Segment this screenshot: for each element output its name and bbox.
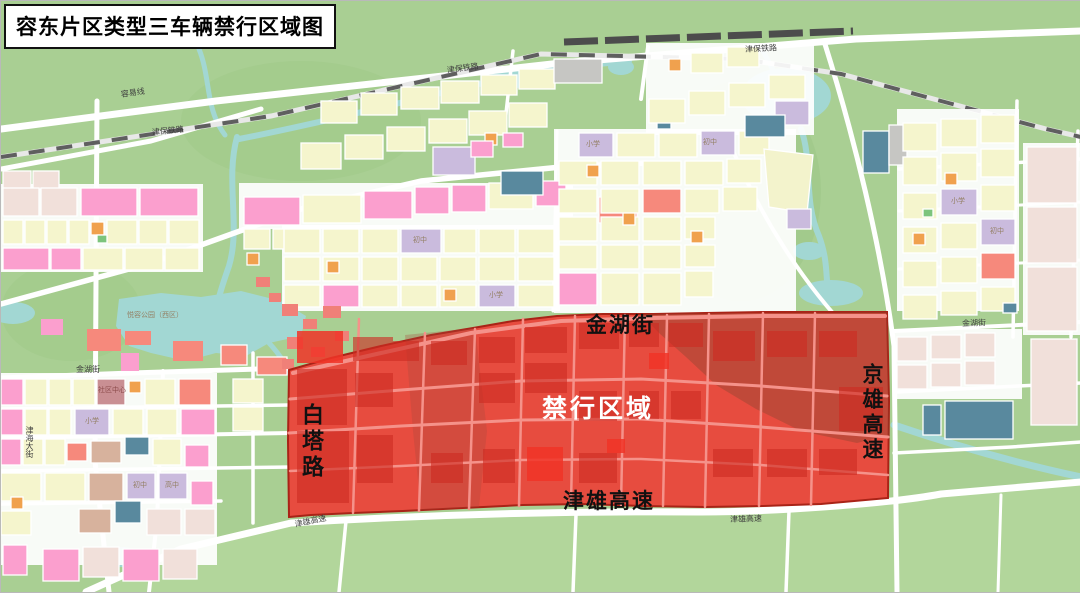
label-middle-school-2: 初中 xyxy=(990,228,1004,235)
label-community-center: 社区中心 xyxy=(98,387,126,394)
label-high-school: 高中 xyxy=(165,482,179,489)
label-jinhu-street-east: 金湖街 xyxy=(962,319,986,328)
label-middle-school-3: 初中 xyxy=(413,237,427,244)
label-jinxiong-small-east: 津雄高速 xyxy=(730,515,762,524)
label-middle-school-1: 初中 xyxy=(703,139,717,146)
label-primary-school-4: 小学 xyxy=(85,418,99,425)
label-jinhu-street-west: 金湖街 xyxy=(76,366,100,374)
label-jinhu-street: 金湖街 xyxy=(586,315,655,336)
label-jingxiong-expressway: 京雄高速 xyxy=(861,363,882,463)
map-figure: 容东片区类型三车辆禁行区域图 金湖街 禁行区域 白塔路 京雄高速 津雄高速 容易… xyxy=(0,0,1080,593)
label-jinxiong-expressway: 津雄高速 xyxy=(563,491,655,512)
label-primary-school-1: 小学 xyxy=(586,141,600,148)
label-jinbao-railway-east: 津保铁路 xyxy=(745,44,777,54)
label-jinhai-street: 津海大街 xyxy=(25,426,33,458)
label-primary-school-3: 小学 xyxy=(489,292,503,299)
label-baita-road: 白塔路 xyxy=(300,403,322,481)
label-middle-school-4: 初中 xyxy=(133,482,147,489)
label-yuerong-park: 悦容公园（西区） xyxy=(127,312,183,319)
label-primary-school-2: 小学 xyxy=(951,198,965,205)
map-title: 容东片区类型三车辆禁行区域图 xyxy=(4,4,336,49)
map-graphic xyxy=(1,1,1080,592)
label-restricted-zone: 禁行区域 xyxy=(542,397,654,422)
